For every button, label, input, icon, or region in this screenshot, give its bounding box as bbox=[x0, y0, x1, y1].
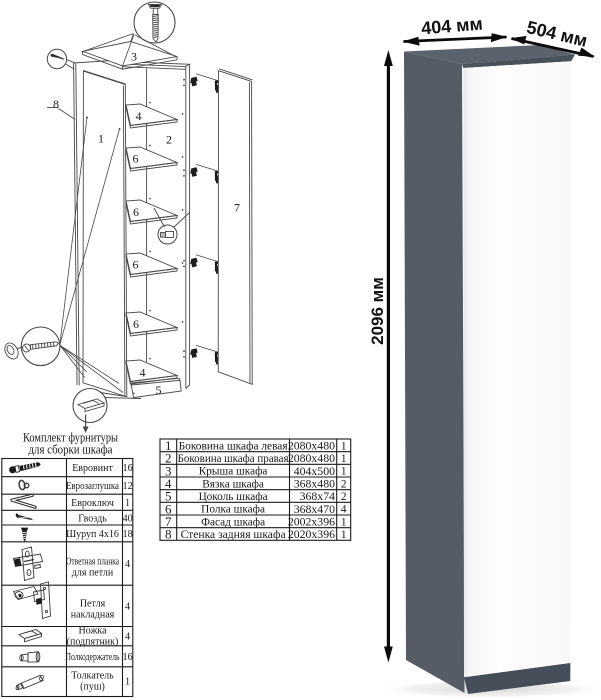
svg-text:Толкатель: Толкатель bbox=[71, 671, 114, 682]
svg-text:2096 мм: 2096 мм bbox=[368, 277, 387, 345]
svg-text:3: 3 bbox=[131, 50, 137, 64]
svg-text:Крыша шкафа: Крыша шкафа bbox=[199, 466, 268, 478]
svg-text:1: 1 bbox=[341, 453, 347, 465]
svg-text:Шуруп 4x16: Шуруп 4x16 bbox=[66, 529, 119, 540]
svg-text:1: 1 bbox=[341, 529, 347, 541]
svg-text:8: 8 bbox=[53, 97, 59, 111]
svg-text:4: 4 bbox=[341, 504, 347, 516]
svg-text:1: 1 bbox=[341, 440, 347, 452]
svg-text:1: 1 bbox=[125, 498, 130, 509]
svg-text:Боковина шкафа левая: Боковина шкафа левая bbox=[179, 440, 288, 452]
svg-text:Петля: Петля bbox=[80, 599, 106, 610]
svg-text:Еврозаглушка: Еврозаглушка bbox=[66, 481, 119, 492]
svg-text:12: 12 bbox=[123, 481, 133, 492]
svg-text:Фасад шкафа: Фасад шкафа bbox=[201, 516, 265, 528]
svg-text:Евроключ: Евроключ bbox=[71, 498, 114, 509]
svg-text:40: 40 bbox=[123, 514, 133, 525]
svg-text:4: 4 bbox=[125, 632, 130, 643]
svg-text:6: 6 bbox=[133, 205, 139, 219]
svg-text:4: 4 bbox=[136, 109, 142, 123]
svg-text:(пуш): (пуш) bbox=[80, 682, 105, 693]
svg-text:2: 2 bbox=[341, 491, 347, 503]
svg-text:накладная: накладная bbox=[71, 610, 115, 621]
svg-text:Цоколь шкафа: Цоколь шкафа bbox=[199, 491, 268, 503]
svg-text:5: 5 bbox=[156, 383, 162, 397]
svg-text:Ножка: Ножка bbox=[78, 626, 107, 637]
svg-text:16: 16 bbox=[123, 652, 133, 663]
svg-text:Ответная планка: Ответная планка bbox=[66, 557, 119, 568]
svg-text:1: 1 bbox=[125, 677, 130, 688]
svg-text:4: 4 bbox=[125, 559, 130, 570]
svg-text:для петли: для петли bbox=[72, 568, 114, 579]
svg-text:2: 2 bbox=[341, 478, 347, 490]
svg-text:(подпятник): (подпятник) bbox=[67, 637, 119, 648]
svg-text:Полкодержатель: Полкодержатель bbox=[66, 652, 120, 663]
svg-text:4: 4 bbox=[140, 366, 146, 380]
svg-text:7: 7 bbox=[234, 201, 240, 215]
svg-text:8: 8 bbox=[165, 527, 172, 542]
svg-text:6: 6 bbox=[133, 152, 139, 166]
svg-text:для сборки шкафа: для сборки шкафа bbox=[29, 443, 114, 457]
svg-text:Гвоздь: Гвоздь bbox=[78, 514, 107, 525]
svg-text:2: 2 bbox=[166, 133, 172, 147]
svg-text:1: 1 bbox=[341, 466, 347, 478]
svg-text:Евровинт: Евровинт bbox=[72, 463, 113, 474]
svg-text:Полка шкафа: Полка шкафа bbox=[201, 504, 265, 516]
svg-text:6: 6 bbox=[133, 258, 139, 272]
svg-text:6: 6 bbox=[133, 317, 139, 331]
svg-text:18: 18 bbox=[123, 529, 133, 540]
svg-text:16: 16 bbox=[123, 463, 133, 474]
svg-text:Вязка шкафа: Вязка шкафа bbox=[202, 478, 264, 490]
svg-text:Боковина шкафа правая: Боковина шкафа правая bbox=[178, 453, 289, 465]
svg-text:Стенка задняя шкафа: Стенка задняя шкафа bbox=[181, 529, 286, 541]
svg-text:1: 1 bbox=[341, 516, 347, 528]
svg-text:4: 4 bbox=[125, 602, 130, 613]
svg-text:1: 1 bbox=[98, 132, 104, 146]
svg-text:2020x396: 2020x396 bbox=[288, 527, 335, 541]
